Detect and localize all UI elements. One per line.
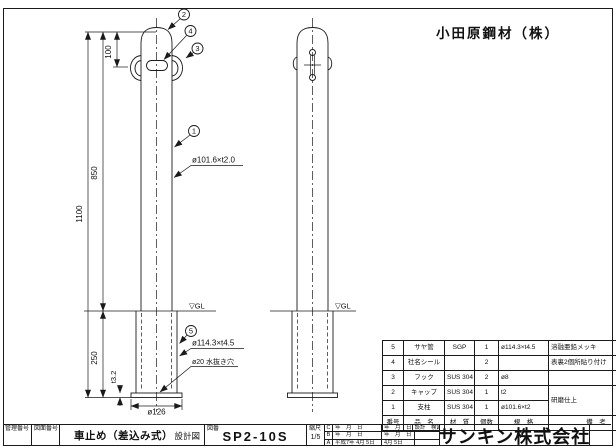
- balloon-3-number: 3: [195, 44, 199, 53]
- part-spec: [499, 356, 549, 371]
- part-name: 社名シール: [404, 356, 445, 371]
- balloon-1-number: 1: [192, 127, 196, 136]
- part-spec: t2: [499, 386, 549, 401]
- revision-mark: A: [325, 440, 333, 446]
- part-no: 4: [383, 356, 404, 371]
- balloon-2-number: 2: [182, 10, 186, 19]
- part-spec: ø8: [499, 371, 549, 386]
- part-name: 支柱: [404, 401, 445, 416]
- hook-right-inner: [172, 61, 178, 77]
- revision-mark: C: [325, 425, 333, 431]
- part-remarks: 溶融亜鉛メッキ: [549, 341, 616, 356]
- part-material: SUS 304: [445, 401, 475, 416]
- sleeve-spec-label: ø114.3×t4.5: [192, 339, 235, 348]
- leader-post-spec: [174, 166, 243, 178]
- front-view: [84, 18, 216, 412]
- part-spec: ø101.6×t2: [499, 401, 549, 416]
- part-name: サヤ管: [404, 341, 445, 356]
- control-no-label: 管理番号: [3, 425, 31, 433]
- balloons: [179, 9, 204, 337]
- signature-row: 年 月 日: [382, 432, 439, 439]
- drawing-no-label: 図面番号: [32, 425, 59, 433]
- post-spec-label: ø101.6×t2.0: [192, 156, 235, 165]
- dim-250-label: 250: [90, 351, 99, 365]
- side-view: [270, 18, 356, 412]
- hook-left-outer: [131, 56, 142, 81]
- part-material: SUS 304: [445, 371, 475, 386]
- dimension-labels: 100 850 1100 250 t3.2 ø126 ø101.6×t2.0 ø…: [75, 45, 351, 417]
- dim-t32-label: t3.2: [109, 371, 118, 384]
- table-row: 3 フック SUS 304 2 ø8: [383, 371, 616, 386]
- part-qty: 1: [475, 386, 499, 401]
- table-row: 2 キャップ SUS 304 1 t2 研磨仕上: [383, 386, 616, 401]
- part-remarks: [549, 371, 616, 386]
- name-plate-oval: [147, 61, 168, 71]
- company-cell: サンキン株式会社: [440, 425, 590, 446]
- revision-mark: B: [325, 432, 333, 438]
- part-no: 2: [383, 386, 404, 401]
- revision-date: 平成7年 4月 5日: [333, 440, 375, 446]
- dim-1100-label: 1100: [75, 205, 84, 223]
- revision-block: C 年 月 日 B 年 月 日 A 平成7年 4月 5日: [325, 425, 382, 446]
- dimension-lines: [85, 19, 244, 411]
- revision-date: 年 月 日: [333, 432, 363, 438]
- part-no: 3: [383, 371, 404, 386]
- signature-date: 年 月 日: [382, 425, 413, 431]
- drain-hole-label: ø20 水抜き穴: [192, 357, 234, 366]
- part-remarks: 表裏2個所貼り付け: [549, 356, 616, 371]
- gl-label-right: ▽GL: [335, 302, 351, 311]
- leader-sleeve-spec: [180, 349, 245, 357]
- hook-ear-right: [328, 57, 332, 70]
- drawing-code-cell: 図番 SP2-10S: [205, 425, 307, 446]
- signature-row: 4月 5日: [382, 440, 439, 446]
- leader-balloon-5: [180, 335, 188, 344]
- leader-balloon-2: [168, 19, 181, 30]
- title-block: 管理番号 図面番号 車止め（差込み式） 設計図 図番 SP2-10S 縮尺 1/…: [3, 424, 611, 446]
- signature-note: 設計 検図: [413, 425, 440, 431]
- dim-126-label: ø126: [147, 408, 166, 417]
- scale-value: 1/5: [307, 434, 324, 441]
- part-name: キャップ: [404, 386, 445, 401]
- hook-left-inner: [135, 61, 141, 77]
- hook-right-outer: [172, 56, 183, 81]
- scale-cell: 縮尺 1/5: [307, 425, 325, 446]
- drawing-sheet: 小田原鋼材（株）: [0, 0, 616, 447]
- table-row: 5 サヤ管 SGP 1 ø114.3×t4.5 溶融亜鉛メッキ: [383, 341, 616, 356]
- part-material: SUS 304: [445, 386, 475, 401]
- part-remarks-merged: 研磨仕上: [549, 386, 616, 416]
- empty-cell: [590, 425, 611, 446]
- signature-date: 4月 5日: [382, 440, 415, 446]
- scale-label: 縮尺: [307, 425, 324, 433]
- balloon-5-number: 5: [189, 327, 193, 336]
- hook-ear-left: [293, 57, 297, 70]
- product-name-cell: 車止め（差込み式） 設計図: [60, 425, 205, 446]
- part-no: 1: [383, 401, 404, 416]
- part-qty: 2: [475, 356, 499, 371]
- control-no-cell: 管理番号: [3, 425, 32, 446]
- signature-block: 年 月 日 設計 検図 年 月 日 4月 5日: [382, 425, 440, 446]
- dim-100-label: 100: [104, 45, 113, 59]
- signature-date: 年 月 日: [382, 432, 415, 438]
- drawing-type: 設計図: [174, 430, 204, 442]
- product-name: 車止め（差込み式）: [60, 428, 173, 443]
- leader-balloon-1: [175, 135, 191, 147]
- balloon-numbers: 1 2 3 4 5: [182, 10, 200, 336]
- part-material: SGP: [445, 341, 475, 356]
- drawing-no-cell: 図面番号: [32, 425, 60, 446]
- gl-label-left: ▽GL: [189, 302, 205, 311]
- revision-row: A 平成7年 4月 5日: [325, 440, 381, 446]
- part-name: フック: [404, 371, 445, 386]
- part-spec: ø114.3×t4.5: [499, 341, 549, 356]
- dim-850-label: 850: [90, 166, 99, 180]
- part-no: 5: [383, 341, 404, 356]
- balloon-4-number: 4: [188, 27, 192, 36]
- leader-balloon-3: [186, 53, 194, 59]
- revision-date: 年 月 日: [333, 425, 363, 431]
- part-qty: 1: [475, 401, 499, 416]
- revision-row: B 年 月 日: [325, 432, 381, 439]
- part-material: [445, 356, 475, 371]
- parts-table: 5 サヤ管 SGP 1 ø114.3×t4.5 溶融亜鉛メッキ 4 社名シール …: [382, 340, 616, 431]
- drawing-code: SP2-10S: [205, 429, 306, 444]
- part-qty: 2: [475, 371, 499, 386]
- table-row: 4 社名シール 2 表裏2個所貼り付け: [383, 356, 616, 371]
- part-qty: 1: [475, 341, 499, 356]
- company-name: サンキン株式会社: [440, 425, 590, 446]
